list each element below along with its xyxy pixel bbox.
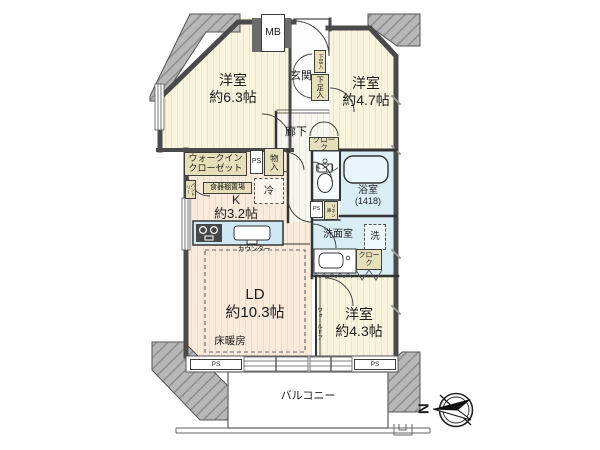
- living-dining-name: LD: [228, 286, 282, 303]
- north-compass: [433, 394, 473, 427]
- bathroom-label: 浴室: [340, 185, 396, 197]
- wall-door-label: ウォールドア: [312, 296, 321, 350]
- toilet-label: トイレ: [312, 164, 340, 174]
- dish-shelf-box: 食器棚置場: [203, 182, 252, 194]
- bedroom-43-size: 約4.3帖: [324, 323, 394, 339]
- bedroom-43-name: 洋室: [331, 306, 387, 322]
- counter-label: カウンター: [230, 246, 278, 253]
- washroom-label: 洗面室: [314, 229, 362, 241]
- cloak-top-box: クローク: [309, 137, 339, 151]
- living-dining-size: 約10.3帖: [218, 304, 292, 321]
- washer-space: 洗: [364, 224, 386, 250]
- toilet-floor: [312, 150, 340, 202]
- hallway-label: 廊下: [277, 126, 315, 139]
- meter-box: MB: [261, 14, 285, 52]
- bathroom-size-label: (1418): [340, 196, 396, 206]
- linen-box: リネン庫: [324, 201, 338, 220]
- fridge-space: 冷: [254, 178, 284, 204]
- walk-in-closet-box: ウォークインクローゼット: [184, 152, 247, 176]
- entrance-label: 玄関: [282, 70, 320, 83]
- floorplan-page: MB 下足入 下足入 ウォークインクローゼット PS 物入 冷 パントリー 食器…: [0, 0, 600, 450]
- pipe-space-toilet: PS: [310, 201, 323, 218]
- pipe-space-bottom-left: PS: [190, 359, 242, 370]
- hallway-floor-lower: [288, 150, 312, 222]
- floor-heating-label: 床暖房: [207, 335, 253, 347]
- pantry-box: パントリー: [185, 180, 196, 199]
- cloak-bottom-box: クローク: [356, 249, 382, 270]
- bedroom-63-name: 洋室: [203, 72, 263, 88]
- balcony-outline: [176, 372, 430, 435]
- bedroom-47-size: 約4.7帖: [331, 92, 401, 108]
- kitchen-size: 約3.2帖: [206, 207, 266, 222]
- storage-box: 物入: [264, 148, 284, 176]
- pipe-space-kitchen: PS: [250, 150, 263, 174]
- balcony-label: バルコニー: [270, 390, 346, 403]
- bedroom-63-size: 約6.3帖: [193, 89, 273, 105]
- pipe-space-bottom-right: PS: [354, 359, 396, 370]
- bedroom-47-name: 洋室: [338, 75, 394, 91]
- north-label: N: [414, 400, 431, 418]
